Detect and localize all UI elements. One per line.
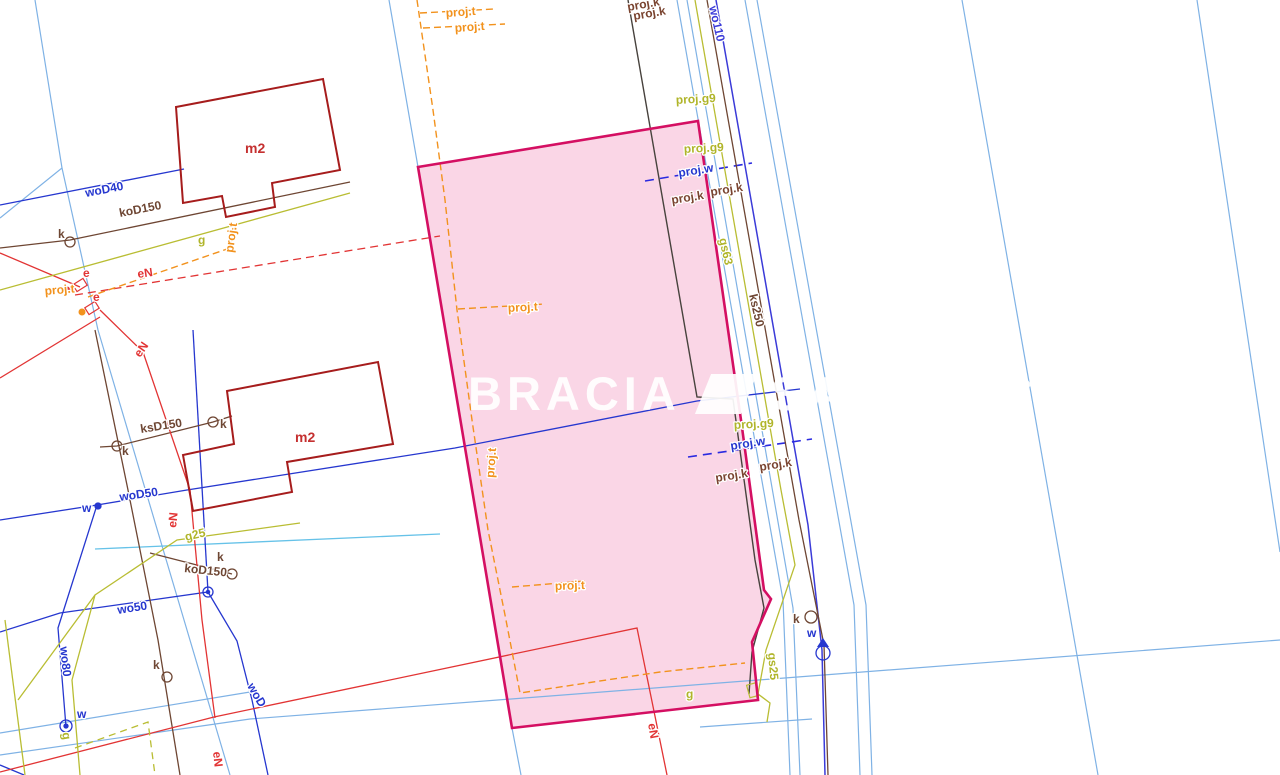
line-sewer-steep <box>95 330 180 775</box>
label-koD150: koD150 <box>118 198 163 220</box>
label-e: e <box>93 290 100 304</box>
label-w: w <box>81 501 92 515</box>
label-proj-k: proj.k <box>709 180 744 199</box>
label-wo80: wo80 <box>57 645 74 678</box>
line-eN-south <box>100 310 215 718</box>
label-k: k <box>58 227 65 241</box>
line-wo50-woD <box>0 592 268 775</box>
cadastral-map-view: proj.t proj.t proj.t proj.t proj.t proj.… <box>0 0 1280 775</box>
label-eN: eN <box>131 339 151 360</box>
manhole-icon <box>805 611 817 623</box>
label-k: k <box>122 444 129 458</box>
label-proj-g: proj.g9 <box>733 416 774 432</box>
label-wo110: wo110 <box>706 4 728 44</box>
label-proj-g: proj.g9 <box>675 91 716 107</box>
line-g-dashed <box>75 722 155 775</box>
label-k: k <box>220 417 227 431</box>
label-woD50: woD50 <box>117 485 159 504</box>
label-proj-t: proj.t <box>507 299 538 315</box>
hydrant-icon <box>64 724 68 728</box>
manhole-icon <box>65 237 75 247</box>
label-k: k <box>217 550 224 564</box>
label-eN: eN <box>165 512 181 529</box>
hydrant-icon <box>817 638 829 647</box>
hydrant-icon <box>816 646 830 660</box>
building-area-label: m2 <box>295 429 315 445</box>
label-k: k <box>793 612 800 626</box>
label-w: w <box>806 626 817 640</box>
line-eN-dashed <box>75 236 440 295</box>
label-e: e <box>83 266 90 280</box>
line-wo80 <box>58 505 97 727</box>
valve-icon <box>95 503 101 509</box>
label-k: k <box>153 658 160 672</box>
building-2 <box>183 362 393 511</box>
label-g-corner: g <box>686 687 693 701</box>
buildings <box>176 79 393 511</box>
label-woD40: woD40 <box>83 179 125 200</box>
building-area-label: m2 <box>245 140 265 156</box>
valve-icon <box>206 590 209 593</box>
power-point-icon <box>79 309 86 316</box>
label-proj-k: proj.k <box>758 455 793 474</box>
label-wo50: wo50 <box>115 598 148 617</box>
label-gs25: gs25 <box>765 652 781 681</box>
label-proj-t: proj.t <box>445 4 476 20</box>
label-proj-t: proj.t <box>44 281 75 298</box>
label-g25: g25 <box>183 525 207 544</box>
label-w: w <box>76 707 87 721</box>
label-eN: eN <box>136 265 153 281</box>
label-proj-g: proj.g9 <box>683 140 724 156</box>
label-eN: eN <box>210 751 226 768</box>
label-g-upper: g <box>198 233 205 247</box>
label-proj-t: proj.t <box>483 447 499 478</box>
label-eN: eN <box>645 722 661 740</box>
label-proj-t: proj.t <box>555 578 585 593</box>
label-ksD150: ksD150 <box>139 416 183 436</box>
drain-line <box>95 534 440 549</box>
map-canvas: proj.t proj.t proj.t proj.t proj.t proj.… <box>0 0 1280 775</box>
line-koD150-upper <box>0 182 350 248</box>
label-g-lower: g <box>59 731 74 741</box>
label-proj-t: proj.t <box>222 222 240 254</box>
label-proj-t: proj.t <box>454 19 485 35</box>
